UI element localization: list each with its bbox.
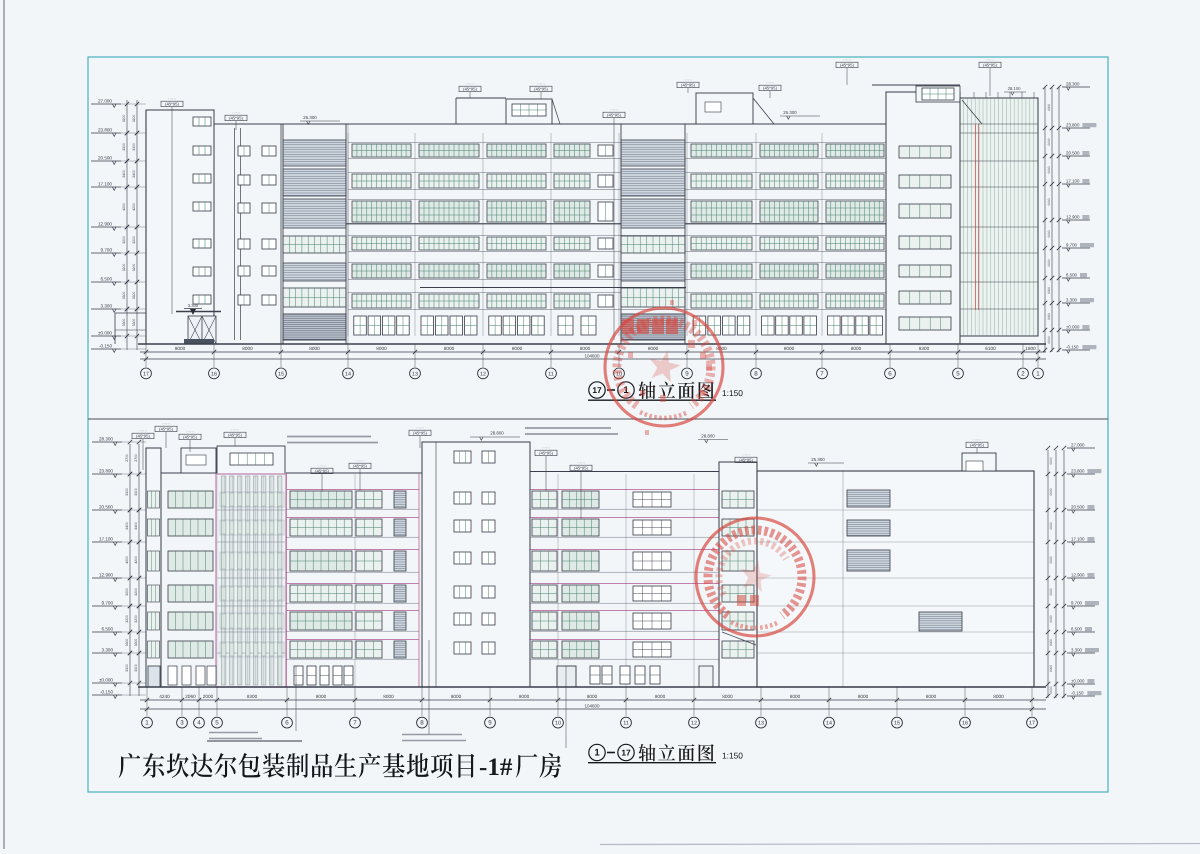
- svg-text:16: 16: [211, 372, 217, 378]
- svg-text:0000: 0000: [1049, 457, 1053, 464]
- svg-text:3.300: 3.300: [188, 303, 199, 308]
- svg-text:±0.000: ±0.000: [1066, 325, 1080, 330]
- svg-text:13: 13: [412, 372, 418, 378]
- svg-text:104600: 104600: [584, 354, 600, 359]
- svg-text:······: ······: [186, 429, 194, 434]
- svg-text:12.900: 12.900: [1071, 573, 1085, 578]
- svg-text:(45*95): (45*95): [970, 443, 984, 448]
- svg-text:3200: 3200: [132, 115, 136, 123]
- svg-text:6.500: 6.500: [102, 627, 114, 632]
- svg-text:27.000: 27.000: [1071, 443, 1085, 448]
- svg-text:0000: 0000: [1047, 259, 1051, 266]
- svg-text:(45*95): (45*95): [228, 433, 242, 438]
- svg-text:0000: 0000: [1047, 287, 1051, 294]
- svg-text:9: 9: [488, 720, 492, 727]
- svg-text:10: 10: [555, 721, 561, 727]
- svg-text:12.900: 12.900: [1066, 215, 1080, 220]
- svg-text:8000: 8000: [851, 346, 862, 351]
- svg-text:9.700: 9.700: [102, 601, 114, 606]
- svg-text:4: 4: [197, 720, 201, 727]
- svg-text:3300: 3300: [132, 292, 136, 300]
- svg-text:3200: 3200: [134, 615, 138, 623]
- svg-text:3300: 3300: [125, 639, 129, 647]
- svg-text:6100: 6100: [985, 346, 996, 351]
- svg-text:3: 3: [180, 720, 184, 727]
- svg-text:3200: 3200: [132, 236, 136, 244]
- svg-text:1: 1: [594, 748, 600, 759]
- svg-text:0000: 0000: [1049, 639, 1053, 646]
- svg-text:17: 17: [621, 747, 631, 757]
- svg-text:8000: 8000: [993, 694, 1004, 699]
- svg-text:(45*95): (45*95): [539, 451, 553, 456]
- svg-text:15: 15: [278, 372, 284, 378]
- svg-text:12.900: 12.900: [99, 573, 113, 578]
- svg-text:(45*95): (45*95): [983, 63, 997, 68]
- svg-text:17: 17: [1029, 721, 1035, 727]
- svg-text:(45*95): (45*95): [607, 113, 621, 118]
- svg-text:4200: 4200: [132, 203, 136, 211]
- svg-text:-0.150: -0.150: [1071, 691, 1084, 696]
- svg-text:8300: 8300: [919, 346, 930, 351]
- svg-text:1:150: 1:150: [722, 388, 743, 398]
- svg-text:8000: 8000: [309, 346, 320, 351]
- svg-text:14: 14: [345, 372, 351, 378]
- svg-text:15: 15: [894, 721, 900, 727]
- svg-text:27.000: 27.000: [98, 99, 112, 104]
- svg-text:28.100: 28.100: [1008, 86, 1021, 91]
- svg-text:······: ······: [139, 428, 147, 433]
- svg-text:3300: 3300: [132, 319, 136, 327]
- svg-text:7: 7: [353, 720, 357, 727]
- svg-text:3.300: 3.300: [102, 648, 114, 653]
- svg-text:104600: 104600: [584, 704, 600, 709]
- svg-text:28.800: 28.800: [701, 434, 715, 439]
- svg-text:······: ······: [843, 57, 851, 62]
- svg-text:13: 13: [758, 721, 764, 727]
- svg-text:-0.150: -0.150: [100, 690, 113, 695]
- svg-text:12.900: 12.900: [98, 222, 112, 227]
- svg-text:8000: 8000: [722, 694, 733, 699]
- svg-text:3400: 3400: [134, 522, 138, 530]
- svg-text:-0.150: -0.150: [99, 344, 112, 349]
- svg-text:(45*95): (45*95): [739, 458, 753, 463]
- svg-text:17.100: 17.100: [99, 537, 113, 542]
- svg-text:20.500: 20.500: [1066, 151, 1080, 156]
- svg-text:0000: 0000: [1047, 230, 1051, 237]
- svg-text:1: 1: [145, 720, 149, 727]
- svg-text:7: 7: [820, 371, 824, 378]
- svg-text:9.700: 9.700: [101, 248, 113, 253]
- svg-text:······: ······: [986, 57, 994, 62]
- svg-text:(45*95): (45*95): [681, 83, 695, 88]
- svg-text:······: ······: [231, 427, 239, 432]
- svg-text:±0.000: ±0.000: [99, 678, 113, 683]
- svg-text:8: 8: [420, 720, 424, 727]
- svg-text:25.300: 25.300: [303, 115, 317, 120]
- svg-text:(45*95): (45*95): [534, 87, 548, 92]
- svg-text:0000: 0000: [1049, 615, 1053, 622]
- svg-text:(45*95): (45*95): [165, 102, 179, 107]
- svg-text:2700: 2700: [125, 454, 129, 462]
- svg-text:(45*95): (45*95): [229, 116, 243, 121]
- svg-text:3200: 3200: [122, 115, 126, 123]
- svg-text:20.500: 20.500: [99, 505, 113, 510]
- svg-text:3200: 3200: [122, 264, 126, 272]
- svg-text:9.700: 9.700: [1071, 601, 1083, 606]
- svg-text:······: ······: [356, 458, 364, 463]
- svg-text:······: ······: [742, 452, 750, 457]
- svg-text:16: 16: [962, 721, 968, 727]
- svg-text:8000: 8000: [175, 346, 186, 351]
- svg-text:17: 17: [143, 372, 149, 378]
- svg-text:2700: 2700: [134, 454, 138, 462]
- svg-text:······: ······: [466, 81, 474, 86]
- svg-text:28.800: 28.800: [490, 431, 504, 436]
- svg-text:3300: 3300: [132, 143, 136, 151]
- svg-text:(45*95): (45*95): [840, 63, 854, 68]
- svg-text:(45*95): (45*95): [315, 469, 329, 474]
- svg-text:(45*95): (45*95): [574, 466, 588, 471]
- svg-text:3200: 3200: [125, 588, 129, 596]
- svg-text:0000: 0000: [1049, 522, 1053, 529]
- svg-text:1: 1: [1036, 371, 1040, 378]
- svg-text:3200: 3200: [134, 588, 138, 596]
- svg-text:8000: 8000: [790, 694, 801, 699]
- svg-text:(45*95): (45*95): [763, 86, 777, 91]
- svg-text:3300: 3300: [134, 639, 138, 647]
- svg-text:(45*95): (45*95): [183, 435, 197, 440]
- svg-text:-0.150: -0.150: [1066, 345, 1079, 350]
- svg-text:······: ······: [537, 81, 545, 86]
- svg-text:3.300: 3.300: [101, 304, 113, 309]
- svg-text:±0.000: ±0.000: [1071, 679, 1085, 684]
- svg-text:······: ······: [577, 460, 585, 465]
- svg-text:8000: 8000: [519, 694, 530, 699]
- svg-text:······: ······: [168, 96, 176, 101]
- svg-text:11: 11: [623, 721, 629, 727]
- svg-text:25.300: 25.300: [783, 110, 797, 115]
- svg-text:12: 12: [480, 372, 486, 378]
- svg-text:0000: 0000: [1047, 104, 1051, 111]
- svg-text:8000: 8000: [580, 346, 591, 351]
- svg-text:23.800: 23.800: [1071, 469, 1085, 474]
- svg-text:3.300: 3.300: [1071, 648, 1083, 653]
- svg-text:(45*95): (45*95): [413, 431, 427, 436]
- svg-text:······: ······: [684, 77, 692, 82]
- svg-text:28.300: 28.300: [1066, 82, 1080, 87]
- svg-text:9: 9: [685, 371, 689, 378]
- svg-text:4240: 4240: [159, 694, 170, 699]
- svg-text:(45*95): (45*95): [353, 464, 367, 469]
- svg-text:8000: 8000: [648, 346, 659, 351]
- svg-text:3300: 3300: [125, 664, 129, 672]
- svg-text:8000: 8000: [512, 346, 523, 351]
- svg-text:14: 14: [826, 721, 832, 727]
- svg-text:0000: 0000: [1047, 336, 1051, 343]
- svg-text:8000: 8000: [587, 694, 598, 699]
- svg-text:0000: 0000: [1047, 313, 1051, 320]
- svg-text:3400: 3400: [125, 522, 129, 530]
- svg-text:8000: 8000: [444, 346, 455, 351]
- svg-text:2060: 2060: [185, 694, 196, 699]
- svg-text:1800: 1800: [1025, 346, 1036, 351]
- svg-text:(45*95): (45*95): [136, 434, 150, 439]
- svg-text:3200: 3200: [125, 615, 129, 623]
- svg-text:0000: 0000: [1049, 556, 1053, 563]
- svg-text:17.100: 17.100: [1071, 537, 1085, 542]
- svg-text:23.800: 23.800: [99, 469, 113, 474]
- svg-text:······: ······: [162, 421, 170, 426]
- svg-text:3300: 3300: [125, 488, 129, 496]
- svg-text:3200: 3200: [122, 236, 126, 244]
- svg-text:0000: 0000: [1047, 198, 1051, 205]
- svg-text:5: 5: [956, 371, 960, 378]
- svg-text:0000: 0000: [1049, 665, 1053, 672]
- svg-text:8000: 8000: [376, 346, 387, 351]
- svg-text:8000: 8000: [383, 694, 394, 699]
- svg-text:······: ······: [318, 463, 326, 468]
- svg-text:8: 8: [754, 371, 758, 378]
- svg-text:8000: 8000: [858, 694, 869, 699]
- svg-text:2000: 2000: [203, 694, 214, 699]
- svg-text:±0.000: ±0.000: [98, 331, 112, 336]
- svg-text:25.300: 25.300: [811, 457, 825, 462]
- svg-text:4200: 4200: [134, 556, 138, 564]
- svg-text:23.800: 23.800: [98, 128, 112, 133]
- svg-text:······: ······: [766, 80, 774, 85]
- svg-text:8000: 8000: [784, 346, 795, 351]
- svg-text:17.100: 17.100: [1066, 179, 1080, 184]
- svg-text:8000: 8000: [242, 346, 253, 351]
- svg-text:3.300: 3.300: [1066, 298, 1078, 303]
- svg-text:8000: 8000: [655, 694, 666, 699]
- svg-text:5: 5: [215, 720, 219, 727]
- svg-text:-1#: -1#: [479, 754, 513, 781]
- svg-text:17.100: 17.100: [98, 182, 112, 187]
- svg-text:8000: 8000: [926, 694, 937, 699]
- svg-text:3300: 3300: [122, 319, 126, 327]
- svg-text:6.500: 6.500: [1066, 273, 1078, 278]
- svg-text:3300: 3300: [122, 292, 126, 300]
- svg-text:12: 12: [691, 721, 697, 727]
- svg-text:6.500: 6.500: [101, 277, 113, 282]
- svg-text:8300: 8300: [247, 694, 258, 699]
- svg-text:8000: 8000: [316, 694, 327, 699]
- svg-text:······: ······: [542, 445, 550, 450]
- svg-text:20.500: 20.500: [1071, 505, 1085, 510]
- svg-text:8000: 8000: [451, 694, 462, 699]
- svg-text:······: ······: [610, 107, 618, 112]
- svg-text:3300: 3300: [122, 143, 126, 151]
- svg-text:20.500: 20.500: [98, 156, 112, 161]
- svg-text:(45*95): (45*95): [159, 427, 173, 432]
- svg-text:6.500: 6.500: [1071, 627, 1083, 632]
- svg-text:3400: 3400: [132, 170, 136, 178]
- svg-text:······: ······: [973, 437, 981, 442]
- svg-text:4200: 4200: [122, 203, 126, 211]
- svg-text:9.700: 9.700: [1066, 243, 1078, 248]
- svg-text:3400: 3400: [122, 170, 126, 178]
- svg-text:0000: 0000: [1049, 686, 1053, 693]
- svg-text:6: 6: [285, 720, 289, 727]
- svg-text:2: 2: [1021, 371, 1025, 378]
- svg-text:4200: 4200: [125, 556, 129, 564]
- svg-text:(45*95): (45*95): [463, 87, 477, 92]
- svg-text:11: 11: [548, 372, 554, 378]
- svg-text:0000: 0000: [1049, 488, 1053, 495]
- svg-text:0000: 0000: [1047, 138, 1051, 145]
- svg-text:3200: 3200: [132, 264, 136, 272]
- svg-text:······: ······: [232, 110, 240, 115]
- svg-text:23.800: 23.800: [1066, 123, 1080, 128]
- svg-text:······: ······: [416, 425, 424, 430]
- svg-text:3300: 3300: [134, 488, 138, 496]
- svg-text:28.300: 28.300: [99, 437, 113, 442]
- svg-text:17: 17: [592, 385, 602, 395]
- svg-text:1:150: 1:150: [722, 751, 743, 761]
- svg-text:3300: 3300: [134, 664, 138, 672]
- svg-text:0000: 0000: [1049, 588, 1053, 595]
- svg-text:6: 6: [888, 371, 892, 378]
- svg-text:0000: 0000: [1047, 166, 1051, 173]
